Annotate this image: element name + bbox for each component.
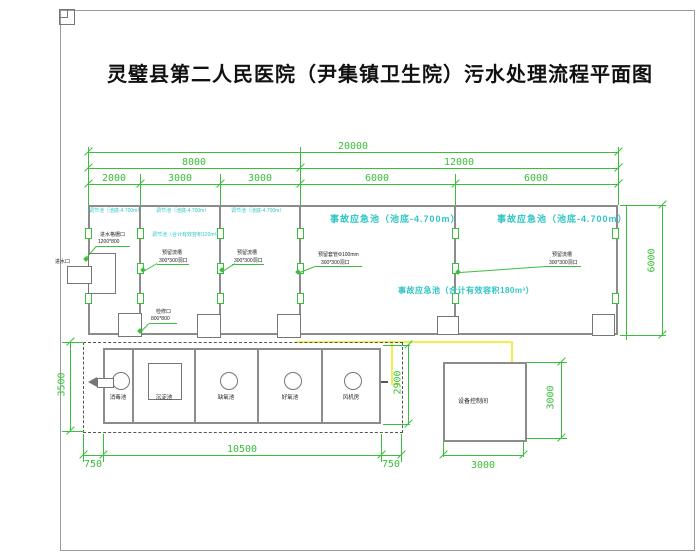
inlet-label: 进水口 [55, 258, 70, 265]
dim-cell-2: 3000 [168, 173, 192, 184]
extension-line [140, 174, 141, 205]
dim-line-lower-left [70, 342, 71, 431]
dim-upper-height: 6000 [647, 239, 658, 283]
tank-label-accident-2: 事故应急池（池底-4.700m） [497, 212, 628, 225]
sleeve-note-line1: 预留套管Φ100mm [318, 251, 359, 258]
extension-line [62, 431, 84, 432]
chute-note-line1: 预留流槽 [552, 251, 572, 258]
manhole [220, 372, 238, 390]
extension-line [62, 342, 84, 343]
extension-line [626, 205, 627, 340]
dim-left-half: 8000 [182, 157, 206, 168]
pipe-stub [381, 381, 388, 383]
wall-opening-mark [452, 228, 459, 239]
dim-bottom-left: 750 [84, 459, 102, 470]
drawing-title: 灵璧县第二人民医院（尹集镇卫生院）污水处理流程平面图 [80, 58, 680, 87]
chute-note-line2: 300*300洞口 [549, 259, 578, 266]
wall-opening-mark [85, 293, 92, 304]
tank-wall [321, 348, 323, 424]
chute-note-line2: 300*300洞口 [159, 257, 188, 264]
access-hatch [437, 316, 459, 335]
dim-line-upper-height [662, 205, 663, 335]
extension-line [401, 434, 402, 462]
extension-line [300, 147, 301, 205]
tank-wall [257, 348, 259, 424]
dim-cell-1: 2000 [102, 173, 126, 184]
wall-opening-mark [297, 293, 304, 304]
manhole [284, 372, 302, 390]
compartment-label-sedimentation: 沉淀池 [142, 393, 186, 401]
dim-right-half: 12000 [444, 157, 474, 168]
compartment-label-disinfection: 消毒池 [96, 393, 140, 401]
hatch-note-line1: 检修口 [156, 308, 171, 315]
wall-opening-mark [297, 228, 304, 239]
chute-note-line2: 300*300洞口 [234, 257, 263, 264]
wall-opening-mark [85, 228, 92, 239]
leader-line [96, 246, 130, 247]
dim-line-room-height [561, 362, 562, 438]
dim-cell-4: 6000 [365, 173, 389, 184]
leader-line [316, 266, 362, 267]
manhole [344, 372, 362, 390]
dim-line-bottom [83, 455, 401, 456]
dim-bottom-center: 10500 [225, 444, 259, 455]
compartment-label-blower: 风机房 [329, 393, 373, 401]
outlet-pipe [97, 378, 114, 388]
cable-line [511, 341, 513, 362]
wall-opening-mark [137, 228, 144, 239]
chute-note-line1: 预留流槽 [162, 249, 182, 256]
compartment-label-anoxic: 缺氧池 [204, 393, 248, 401]
extension-line [618, 147, 619, 205]
compartment-label-aerobic: 好氧池 [268, 393, 312, 401]
inlet-pipe-box [67, 266, 92, 284]
tank-label-regulating-1: 调节池（池底-4.700m） [89, 207, 142, 214]
wall-opening-mark [612, 228, 619, 239]
inlet-chamber [88, 253, 116, 294]
extension-line [381, 434, 382, 462]
access-hatch [592, 314, 615, 336]
chute-note-line1: 预留流槽 [237, 249, 257, 256]
dim-line-halves [88, 168, 618, 169]
control-room-label: 设备控制间 [458, 396, 488, 405]
manhole [112, 372, 130, 390]
dim-cell-5: 6000 [524, 173, 548, 184]
extension-line [83, 434, 84, 462]
dim-room-width: 3000 [471, 460, 495, 471]
leader-line [232, 264, 264, 265]
bottom-tank-outline [103, 348, 381, 424]
access-hatch [277, 314, 301, 338]
leader-line [149, 323, 177, 324]
tank-label-regulating-combined: 调节池（合计有效容积120m³） [152, 231, 221, 238]
tank-label-regulating-3: 调节池（池底-4.700m） [231, 207, 284, 214]
grate-note-line1: 进水格栅口 [100, 231, 125, 238]
extension-line [103, 434, 104, 462]
dim-lower-mid-height: 2900 [393, 361, 404, 405]
tank-wall [132, 348, 134, 424]
extension-line [88, 147, 89, 205]
access-hatch [197, 314, 221, 338]
dim-total-width: 20000 [338, 141, 368, 152]
leader-line [547, 266, 581, 267]
wall-opening-mark [137, 293, 144, 304]
tank-label-accident-combined: 事故应急池（合计有效容积180m³） [398, 285, 534, 296]
dim-room-height: 3000 [546, 376, 557, 420]
drawing-canvas: 灵璧县第二人民医院（尹集镇卫生院）污水处理流程平面图 20000 8000 12… [0, 0, 700, 560]
tank-wall [194, 348, 196, 424]
dim-line-lower-mid [408, 345, 409, 424]
dim-line-total [88, 152, 618, 153]
access-hatch [118, 313, 142, 337]
dim-bottom-right: 750 [382, 459, 400, 470]
tank-label-regulating-2: 调节池（池底-4.700m） [156, 207, 209, 214]
sleeve-note-line2: 300*300洞口 [321, 259, 350, 266]
tank-label-accident-1: 事故应急池（池底-4.700m） [330, 212, 461, 225]
dim-cell-3: 3000 [248, 173, 272, 184]
outlet-arrow-icon [88, 377, 97, 387]
wall-opening-mark [217, 293, 224, 304]
extension-line [220, 174, 221, 205]
corner-mark-inner [59, 9, 68, 18]
hatch-note-line2: 800*800 [151, 316, 170, 322]
dim-line-cells [88, 184, 618, 185]
extension-line [455, 174, 456, 205]
grate-note-line2: 1200*800 [98, 239, 119, 245]
dim-line-room-width [443, 455, 523, 456]
dim-lower-left-height: 3500 [57, 363, 68, 407]
leader-line [157, 264, 189, 265]
wall-opening-mark [612, 293, 619, 304]
